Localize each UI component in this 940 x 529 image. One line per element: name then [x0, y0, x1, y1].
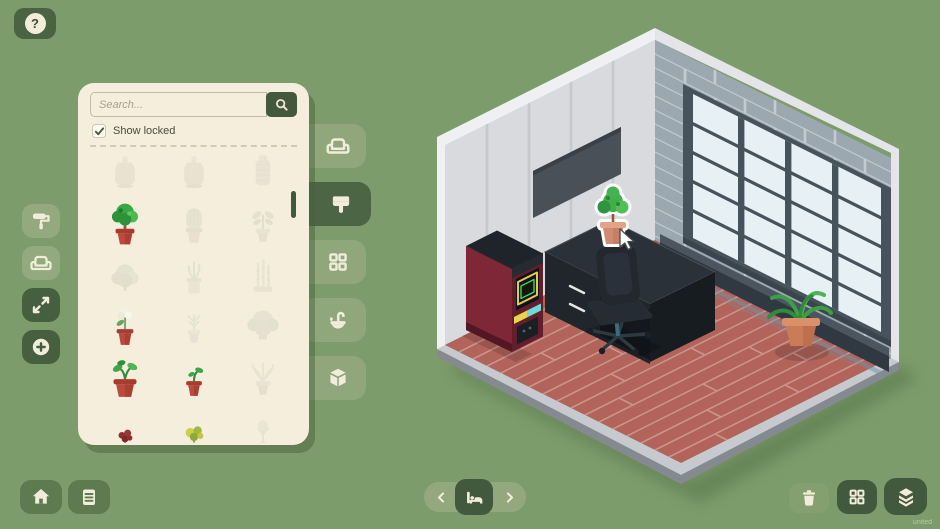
expand-button[interactable] — [22, 288, 60, 322]
item-vase-tall[interactable] — [102, 148, 148, 198]
tab-storage[interactable] — [308, 356, 366, 400]
item-sprout-small[interactable] — [171, 352, 217, 402]
item-plant-square-pot[interactable] — [171, 250, 217, 300]
home-icon — [29, 485, 53, 509]
trash-icon — [798, 487, 820, 509]
chevron-left-icon — [434, 490, 449, 505]
notes-button[interactable] — [68, 480, 110, 514]
storage-box-icon — [325, 365, 351, 391]
tab-decor[interactable] — [308, 182, 371, 226]
question-icon: ? — [25, 13, 46, 34]
current-room-button[interactable] — [455, 479, 493, 515]
version-label: united — [913, 519, 932, 526]
item-bud-red[interactable] — [102, 403, 148, 444]
search-button[interactable] — [266, 92, 297, 117]
window-grid-icon — [325, 249, 351, 275]
item-plant-yellow[interactable] — [171, 403, 217, 444]
sofa-icon — [29, 251, 53, 275]
item-cactus[interactable] — [171, 199, 217, 249]
item-grid — [78, 147, 309, 443]
item-flower-white[interactable] — [102, 301, 148, 351]
notes-icon — [77, 485, 101, 509]
delete-button[interactable] — [789, 483, 829, 513]
expand-icon — [29, 293, 53, 317]
layers-button[interactable] — [884, 478, 927, 515]
add-button[interactable] — [22, 330, 60, 364]
item-plant-fern[interactable] — [240, 352, 286, 402]
paint-roller-icon — [29, 209, 53, 233]
item-sprout-large[interactable] — [102, 352, 148, 402]
grid-view-icon — [846, 486, 868, 508]
item-plant-leafy[interactable] — [240, 199, 286, 249]
bed-icon — [463, 486, 486, 509]
search-input[interactable] — [90, 92, 267, 117]
chevron-right-icon — [502, 490, 517, 505]
home-button[interactable] — [20, 480, 62, 514]
paint-roller-button[interactable] — [22, 204, 60, 238]
sink-icon — [325, 307, 351, 333]
help-button[interactable]: ? — [14, 8, 56, 39]
sofa-icon — [325, 133, 351, 159]
item-browser-panel: Show locked — [78, 83, 309, 445]
add-icon — [29, 335, 53, 359]
tab-plumbing[interactable] — [308, 298, 366, 342]
app-root: ? — [0, 0, 940, 529]
item-plant-thin[interactable] — [171, 301, 217, 351]
show-locked-checkbox[interactable]: Show locked — [92, 124, 295, 138]
layers-icon — [894, 485, 918, 509]
item-bush[interactable] — [102, 250, 148, 300]
check-icon — [94, 126, 105, 137]
checkbox-box — [92, 124, 106, 138]
prev-room-button[interactable] — [431, 484, 451, 510]
grid-view-button[interactable] — [837, 480, 877, 514]
tab-furniture[interactable] — [308, 124, 366, 168]
paint-brush-icon — [328, 191, 354, 217]
next-room-button[interactable] — [499, 484, 519, 510]
item-vase-ribbed[interactable] — [240, 148, 286, 198]
item-bamboo[interactable] — [240, 250, 286, 300]
search-icon — [274, 97, 290, 113]
furniture-button[interactable] — [22, 246, 60, 280]
item-plant-wide[interactable] — [240, 301, 286, 351]
scrollbar-thumb[interactable] — [291, 191, 296, 218]
show-locked-label: Show locked — [113, 125, 175, 137]
item-tree-pot[interactable] — [102, 199, 148, 249]
tab-windows[interactable] — [308, 240, 366, 284]
item-plant-pale[interactable] — [240, 403, 286, 444]
search-row — [90, 92, 297, 117]
item-vase-tall[interactable] — [171, 148, 217, 198]
